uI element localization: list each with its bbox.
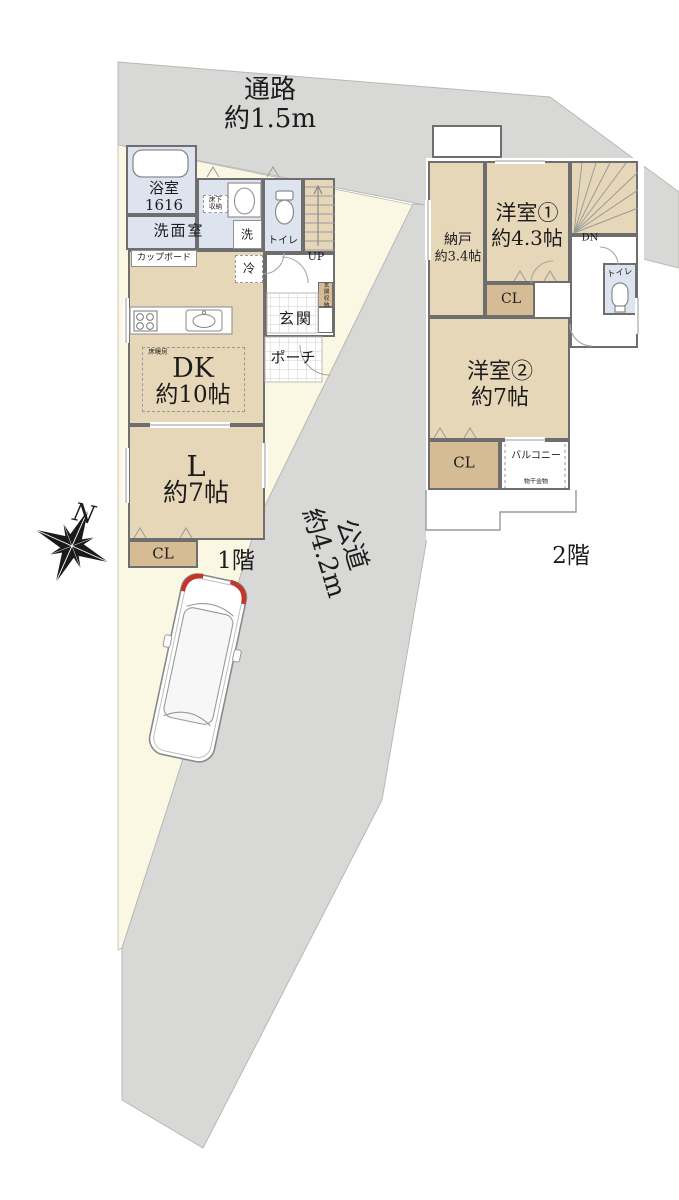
floor2-tag: 2階 — [552, 544, 590, 570]
public-road-label: 公道 約4.2m — [296, 496, 379, 601]
floor-heating-label: 床暖房 — [148, 348, 168, 355]
washer-label: 洗 — [241, 228, 253, 241]
entrance-shoe-space — [318, 307, 333, 333]
car — [141, 570, 256, 766]
stairs-2f — [570, 161, 638, 235]
entrance-storage-label: 玄関収納 — [322, 282, 328, 308]
closet-1f-label: CL — [152, 546, 173, 563]
porch-label: ポーチ — [270, 350, 315, 367]
closet-2f-b-label: CL — [453, 455, 474, 472]
north-label: N — [70, 498, 97, 530]
bedroom1-label: 洋室① — [496, 202, 559, 226]
washroom-label: 洗面室 — [153, 223, 204, 240]
bath-label: 浴室 1616 — [145, 180, 183, 214]
bedroom1-size-label: 約4.3帖 — [491, 227, 563, 249]
entrance-label: 玄関 — [279, 311, 313, 328]
roof-outline — [426, 490, 576, 530]
stairs-1f — [303, 178, 335, 253]
balcony-label: バルコニー — [511, 450, 561, 461]
up-label: UP — [308, 251, 325, 263]
closet-2f-a-label: CL — [501, 292, 521, 308]
underfloor-storage-label: 床下 収納 — [209, 197, 222, 212]
void-roof-box — [432, 125, 502, 158]
storage-2f-label: 納戸 — [444, 233, 472, 249]
dk-label: DK — [172, 354, 214, 384]
laundry-hardware-label: 物干金物 — [524, 480, 548, 487]
compass-icon — [19, 493, 125, 599]
car-mirror-right — [232, 649, 241, 662]
cupboard-label: カップボード — [137, 253, 191, 263]
toilet-1f-label: トイレ — [268, 235, 298, 246]
fridge-label: 冷 — [243, 262, 255, 275]
passage-2f — [535, 283, 570, 317]
passage-road-label: 通路 約1.5m — [224, 76, 316, 134]
storage-2f-size-label: 約3.4帖 — [435, 251, 482, 266]
car-rear-light-right — [227, 582, 248, 604]
living-size-label: 約7帖 — [163, 479, 229, 507]
floor1-tag: 1階 — [217, 549, 255, 575]
bedroom2-size-label: 約7帖 — [471, 387, 529, 412]
bedroom2-label: 洋室② — [467, 361, 533, 386]
dk-size-label: 約10帖 — [155, 383, 230, 409]
car-mirror-left — [163, 634, 172, 647]
car-rear-light-left — [183, 573, 204, 595]
dn-label: DN — [582, 232, 599, 243]
floor-plan-canvas: N 通路 約1.5m 公道 約4.2m 1階 2階 浴室 1616 洗面室 洗 … — [0, 0, 679, 1200]
